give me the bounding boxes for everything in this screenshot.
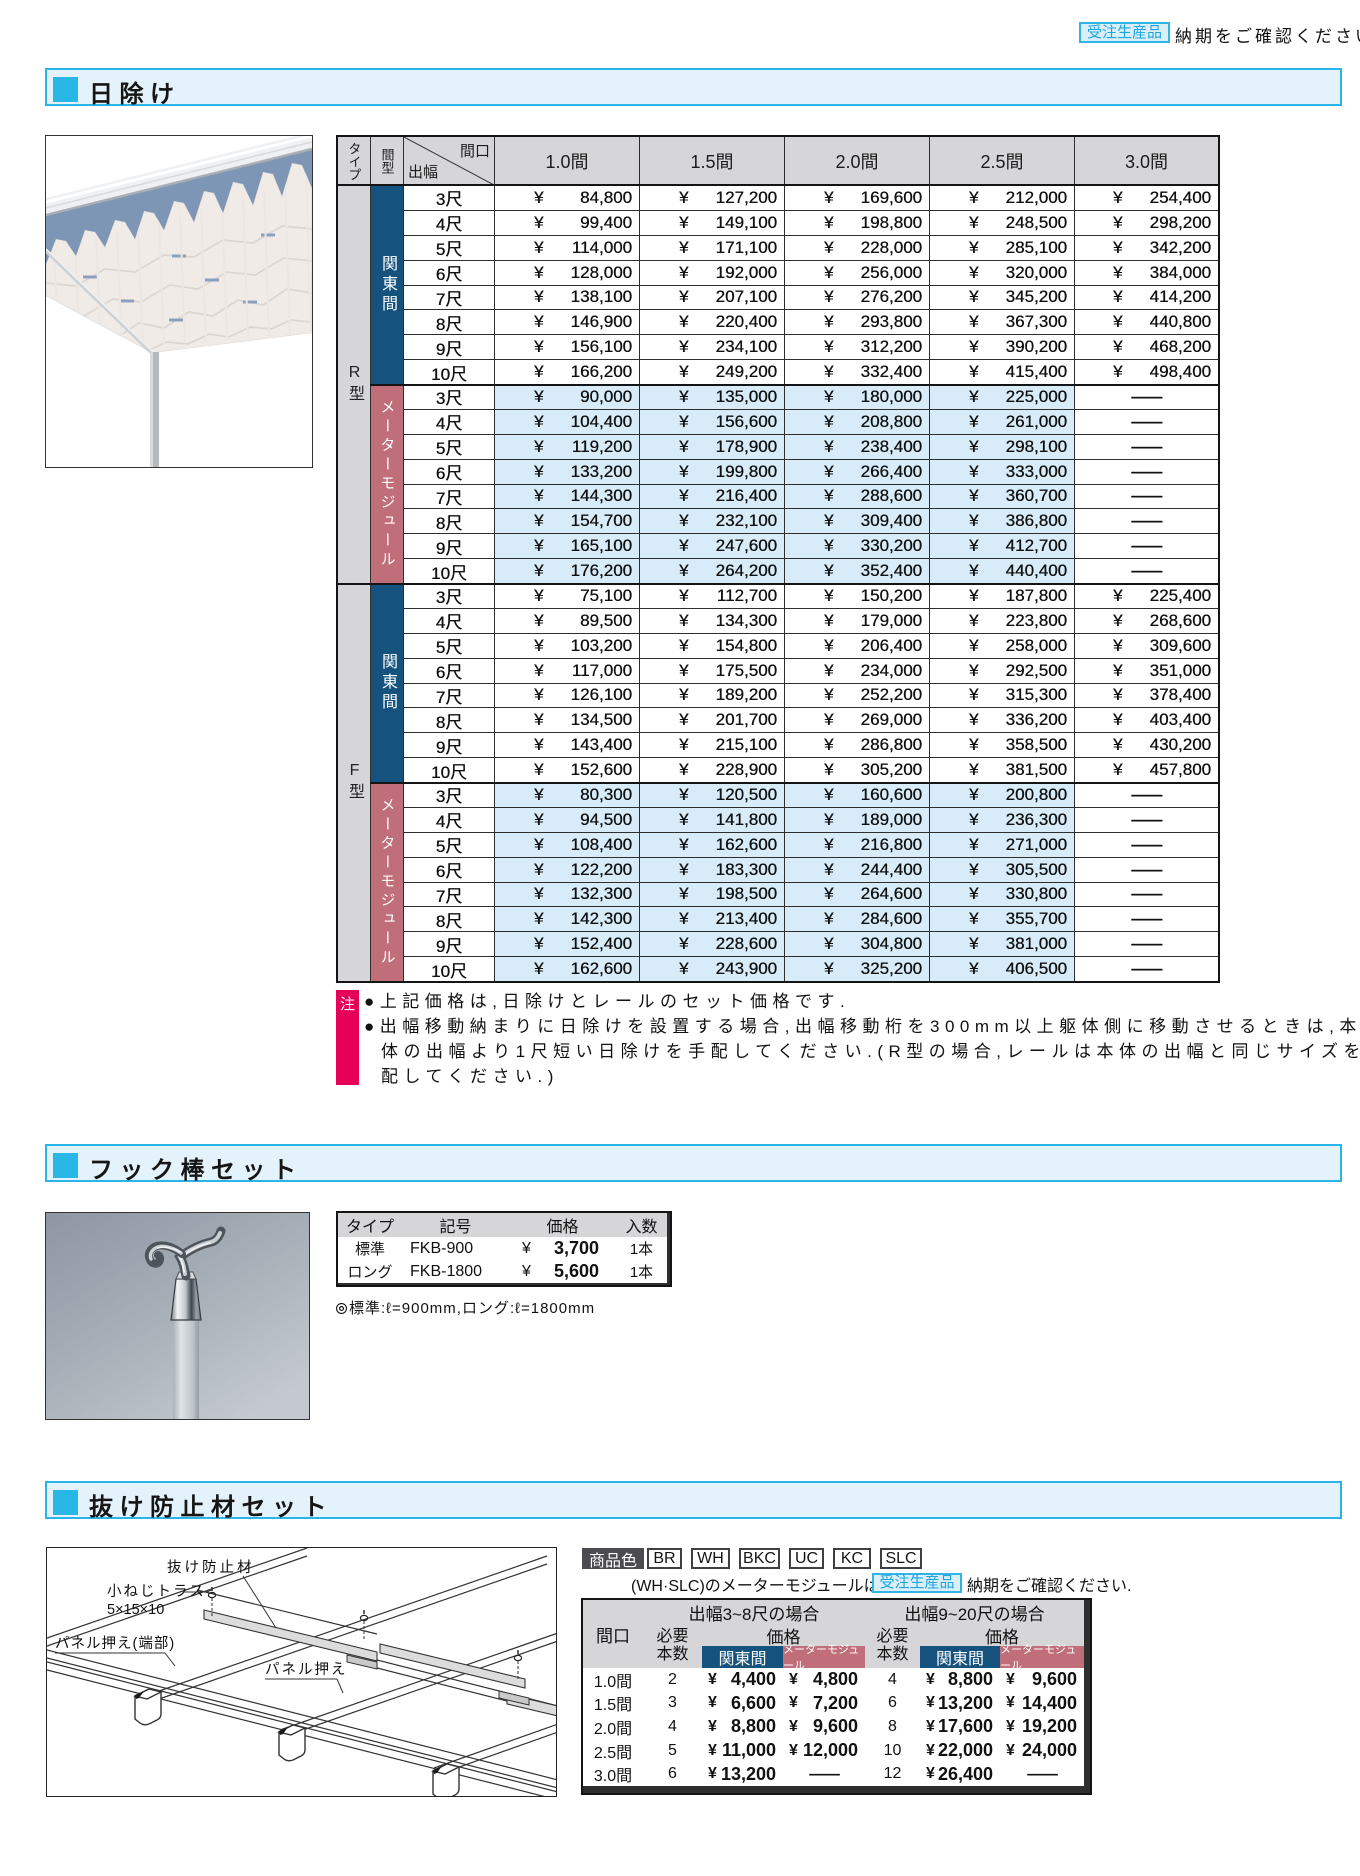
svg-text:パネル押え: パネル押え: [265, 1661, 348, 1678]
svg-text:パネル押え(端部): パネル押え(端部): [55, 1635, 175, 1652]
svg-text:抜け防止材: 抜け防止材: [167, 1559, 255, 1576]
svg-text:5×15×10: 5×15×10: [107, 1602, 164, 1618]
